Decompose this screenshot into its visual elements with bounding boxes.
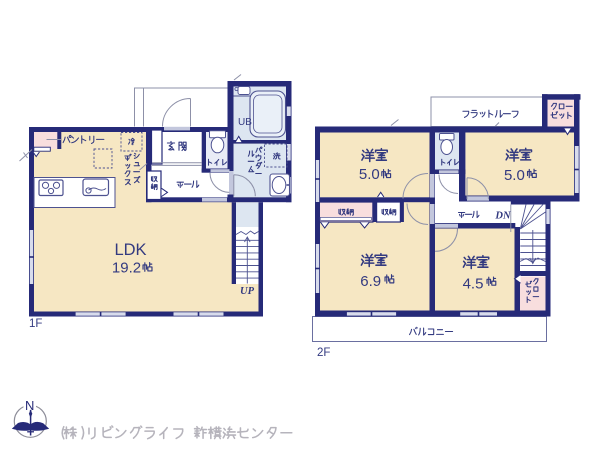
svg-text:6.9: 6.9: [360, 273, 381, 290]
svg-text:1F: 1F: [29, 318, 42, 330]
svg-text:2F: 2F: [317, 347, 330, 359]
svg-text:LDK: LDK: [114, 241, 146, 259]
svg-text:4.5: 4.5: [463, 276, 484, 293]
svg-text:N: N: [25, 398, 34, 413]
svg-text:5.0: 5.0: [504, 167, 525, 184]
svg-text:DN: DN: [494, 210, 511, 221]
svg-text:UB: UB: [238, 117, 252, 128]
svg-text:19.2: 19.2: [112, 259, 141, 276]
svg-text:5.0: 5.0: [359, 166, 380, 183]
svg-text:UP: UP: [240, 286, 255, 297]
